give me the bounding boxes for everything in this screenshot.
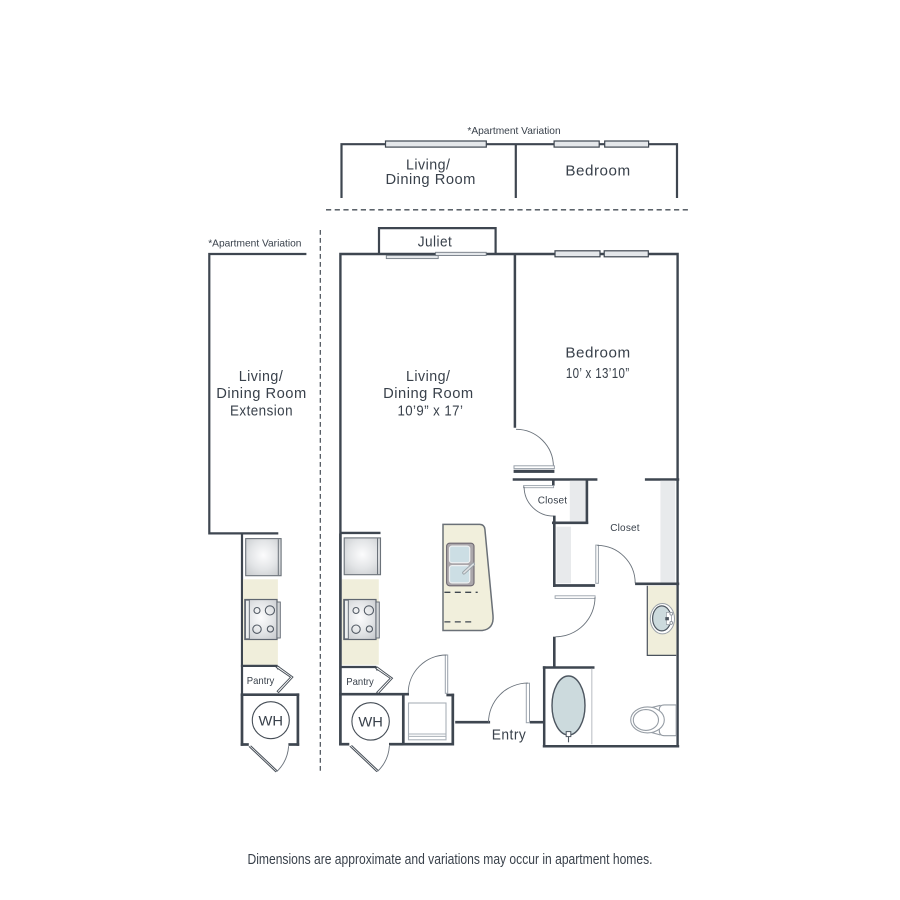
svg-text:Dining Room: Dining Room	[216, 385, 307, 402]
svg-text:10’9” x 17’: 10’9” x 17’	[397, 402, 463, 419]
svg-text:Living/: Living/	[406, 368, 451, 385]
svg-text:Living/: Living/	[239, 368, 284, 385]
svg-text:WH: WH	[259, 713, 284, 728]
svg-text:Pantry: Pantry	[346, 676, 374, 688]
svg-text:WH: WH	[358, 715, 383, 730]
svg-text:Extension: Extension	[230, 402, 293, 419]
svg-text:*Apartment Variation: *Apartment Variation	[467, 126, 560, 137]
svg-text:Bedroom: Bedroom	[565, 345, 630, 362]
svg-text:10’ x 13’10”: 10’ x 13’10”	[566, 365, 630, 382]
svg-text:Dining Room: Dining Room	[385, 171, 476, 188]
svg-text:Juliet: Juliet	[418, 233, 453, 250]
svg-text:Bedroom: Bedroom	[565, 162, 630, 179]
svg-text:Closet: Closet	[538, 496, 568, 507]
svg-text:*Apartment Variation: *Apartment Variation	[208, 238, 301, 249]
svg-text:Entry: Entry	[492, 727, 527, 744]
svg-text:Closet: Closet	[610, 523, 640, 534]
svg-text:Dining Room: Dining Room	[383, 385, 474, 402]
svg-text:Pantry: Pantry	[247, 675, 275, 687]
svg-text:Dimensions are approximate and: Dimensions are approximate and variation…	[248, 852, 653, 868]
